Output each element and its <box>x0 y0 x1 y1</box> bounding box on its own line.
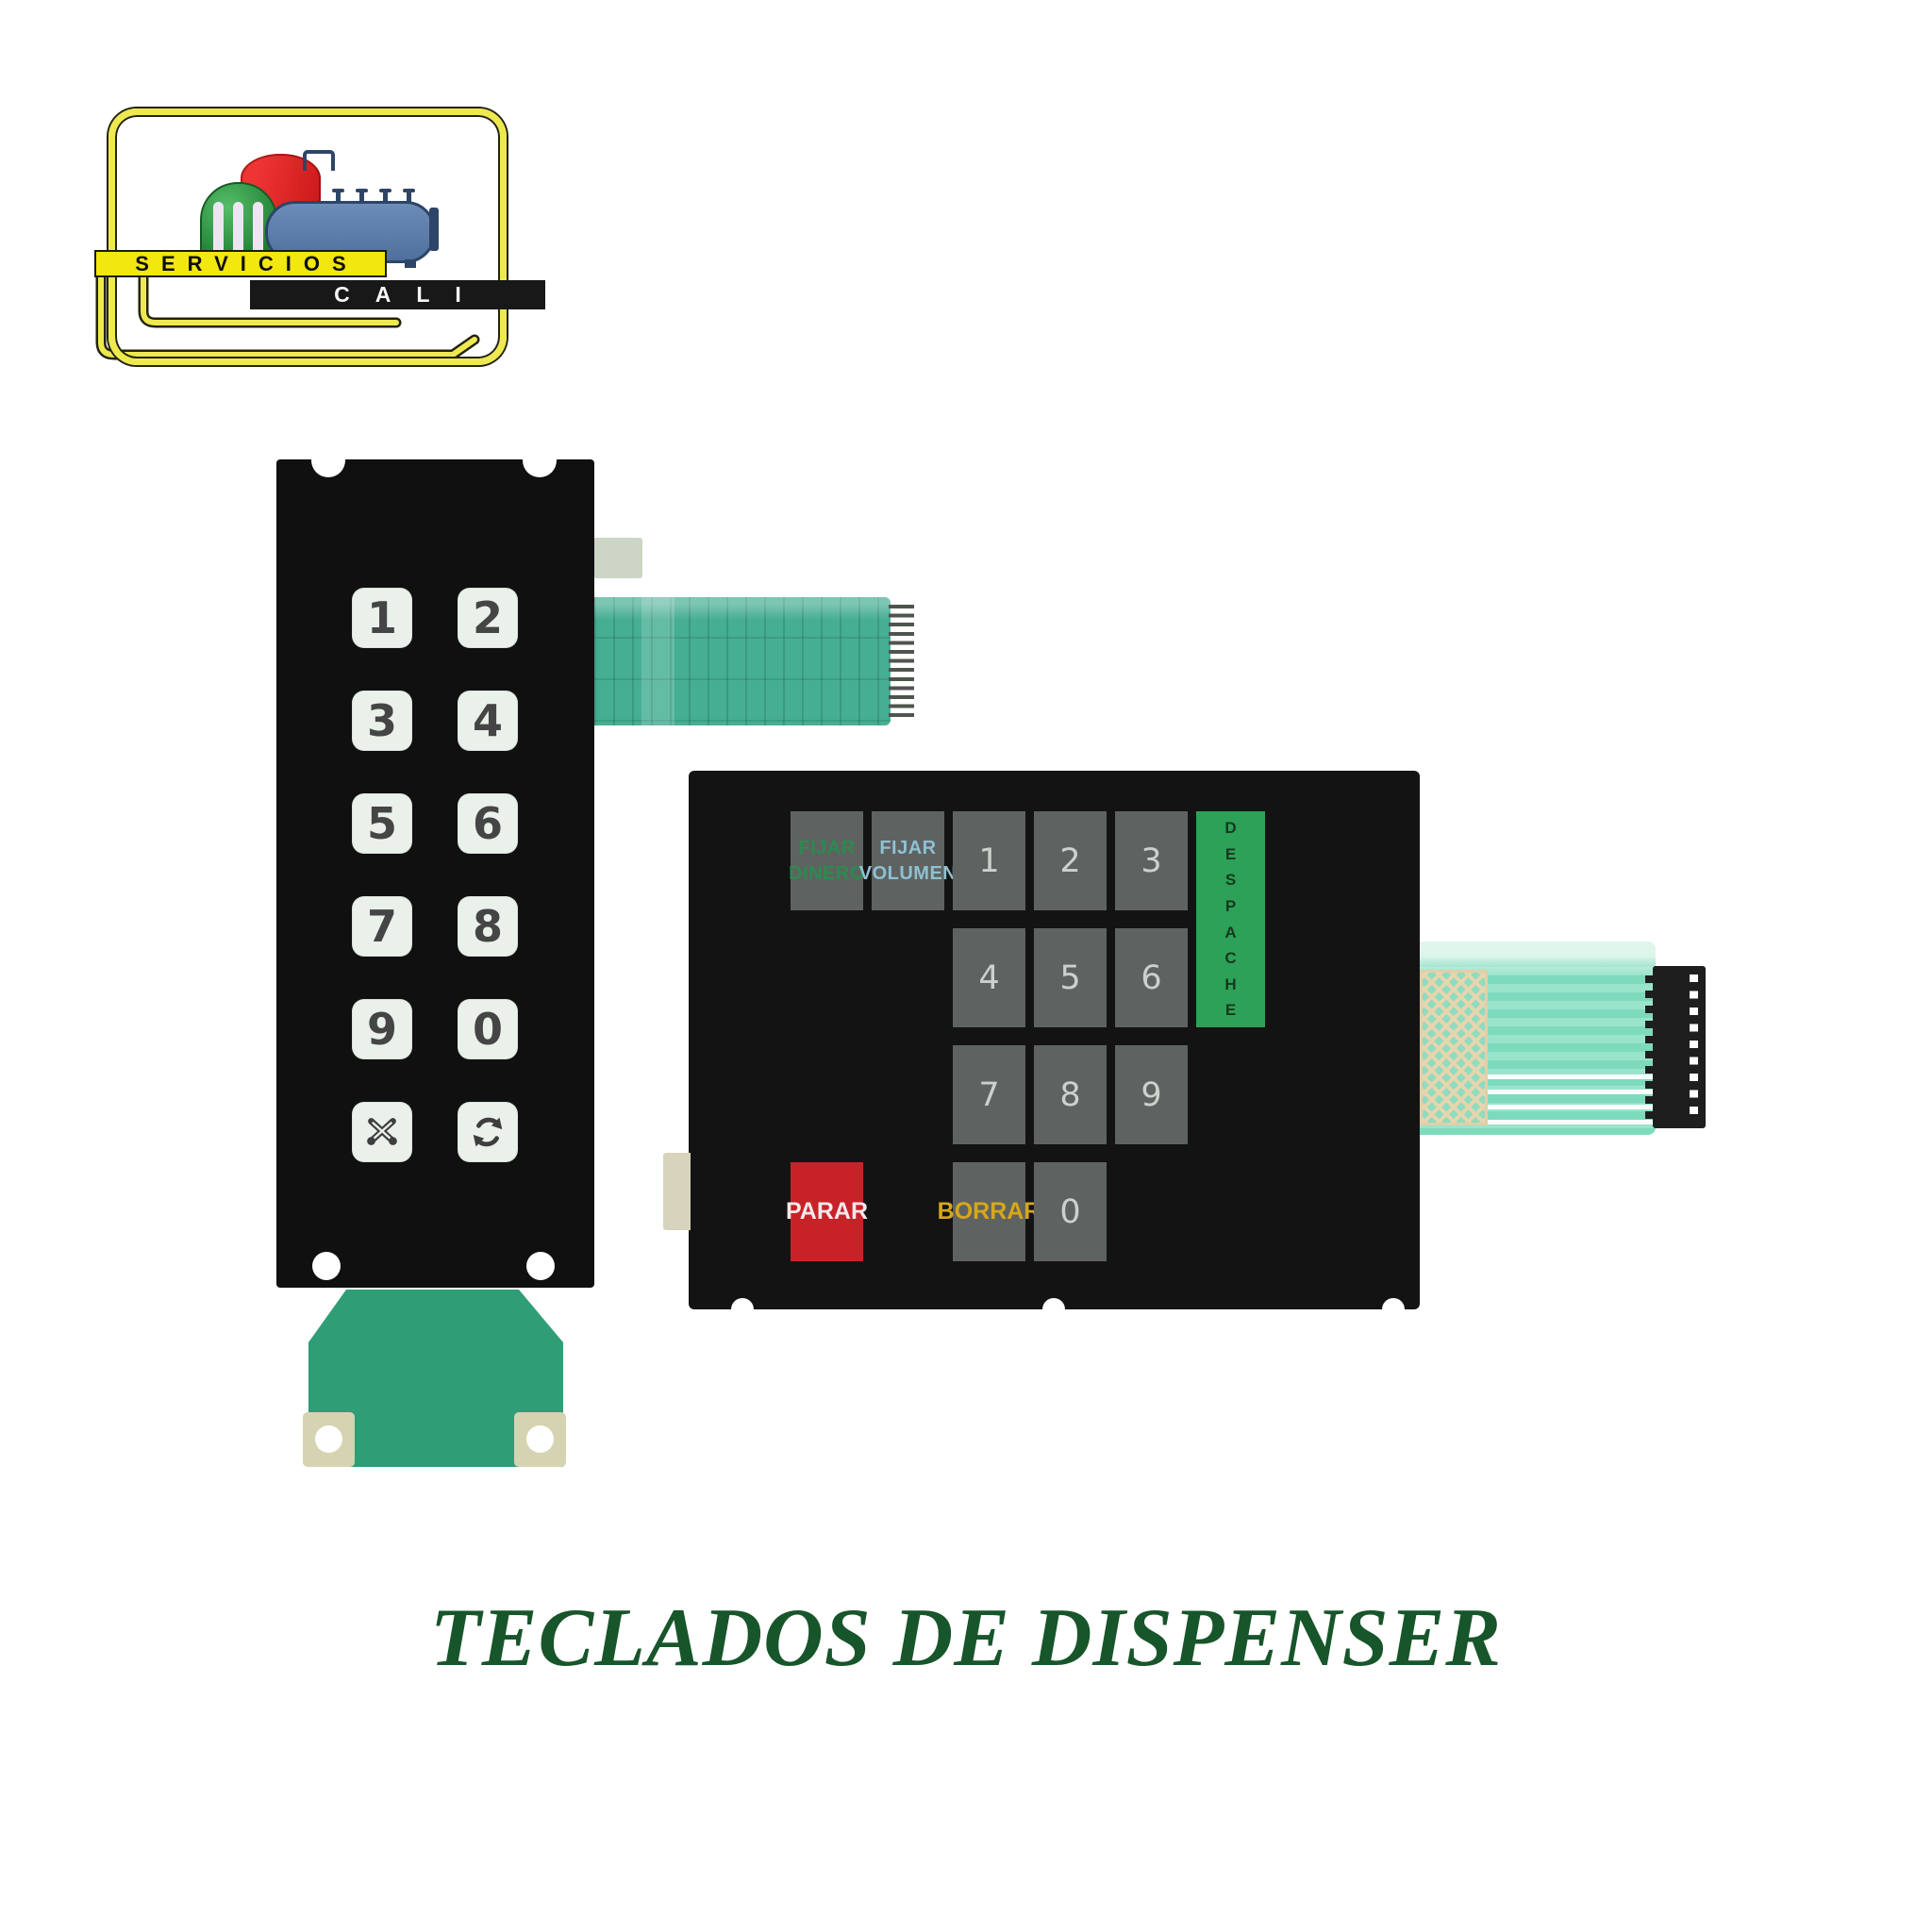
ribbon-strands <box>1481 1064 1656 1130</box>
ribbon-connector <box>1653 966 1706 1128</box>
right-key-4: 4 <box>953 928 1025 1027</box>
left-key-2: 2 <box>458 588 518 648</box>
left-tail-connector <box>308 1288 563 1467</box>
left-keypad-side-tab <box>593 538 642 578</box>
logo: SERVICIOS CALI <box>90 90 580 401</box>
product-image: SERVICIOS CALI 1234567890 FIJAR DINEROFI… <box>0 0 1932 1932</box>
mounting-notch <box>311 443 345 477</box>
tail-corner-tab <box>303 1412 355 1467</box>
right-key-8: 8 <box>1034 1045 1107 1144</box>
right-key-fijar-dinero: FIJAR DINERO <box>791 811 863 910</box>
mounting-hole <box>312 1252 341 1280</box>
right-key-6: 6 <box>1115 928 1188 1027</box>
right-key-0: 0 <box>1034 1162 1107 1261</box>
mounting-notch <box>731 1298 754 1321</box>
caption-title: TECLADOS DE DISPENSER <box>0 1591 1932 1686</box>
left-key-9: 9 <box>352 999 412 1059</box>
left-key-8: 8 <box>458 896 518 957</box>
mounting-notch <box>1382 1298 1405 1321</box>
right-keypad-keys: FIJAR DINEROFIJAR VOLUMEN123D E S P A C … <box>791 811 1265 1261</box>
crossed-pencils-icon <box>352 1102 412 1162</box>
left-keypad-keys: 1234567890 <box>352 588 518 1162</box>
left-keypad: 1234567890 <box>276 459 594 1288</box>
right-key-1: 1 <box>953 811 1025 910</box>
cycle-arrows-icon <box>458 1102 518 1162</box>
right-key-3: 3 <box>1115 811 1188 910</box>
right-keypad: FIJAR DINEROFIJAR VOLUMEN123D E S P A C … <box>689 771 1420 1309</box>
mounting-notch <box>523 443 557 477</box>
mounting-hole <box>526 1252 555 1280</box>
right-keypad-side-tab <box>663 1153 691 1230</box>
logo-text-servicios: SERVICIOS <box>135 252 358 276</box>
mounting-hole <box>315 1425 342 1453</box>
right-key-7: 7 <box>953 1045 1025 1144</box>
left-key-5: 5 <box>352 793 412 854</box>
left-ribbon-cable <box>575 597 891 725</box>
tank-handle-icon <box>303 150 335 171</box>
left-key-6: 6 <box>458 793 518 854</box>
right-key-despache: D E S P A C H E <box>1196 811 1265 1027</box>
tail-corner-tab <box>514 1412 566 1467</box>
logo-text-cali: CALI <box>334 282 487 308</box>
right-key-parar: PARAR <box>791 1162 863 1261</box>
left-key-1: 1 <box>352 588 412 648</box>
right-key-fijar-volumen: FIJAR VOLUMEN <box>872 811 944 910</box>
left-key-3: 3 <box>352 691 412 751</box>
mounting-hole <box>526 1425 554 1453</box>
left-key-7: 7 <box>352 896 412 957</box>
mounting-notch <box>1042 1298 1065 1321</box>
right-key-2: 2 <box>1034 811 1107 910</box>
logo-banner-cali: CALI <box>250 280 545 309</box>
right-key-5: 5 <box>1034 928 1107 1027</box>
right-key-9: 9 <box>1115 1045 1188 1144</box>
left-ribbon-pins <box>889 605 914 722</box>
left-key-4: 4 <box>458 691 518 751</box>
right-key-borrar: BORRAR <box>953 1162 1025 1261</box>
ribbon-mesh-pad <box>1420 970 1488 1125</box>
logo-banner-servicios: SERVICIOS <box>94 250 387 277</box>
left-key-0: 0 <box>458 999 518 1059</box>
